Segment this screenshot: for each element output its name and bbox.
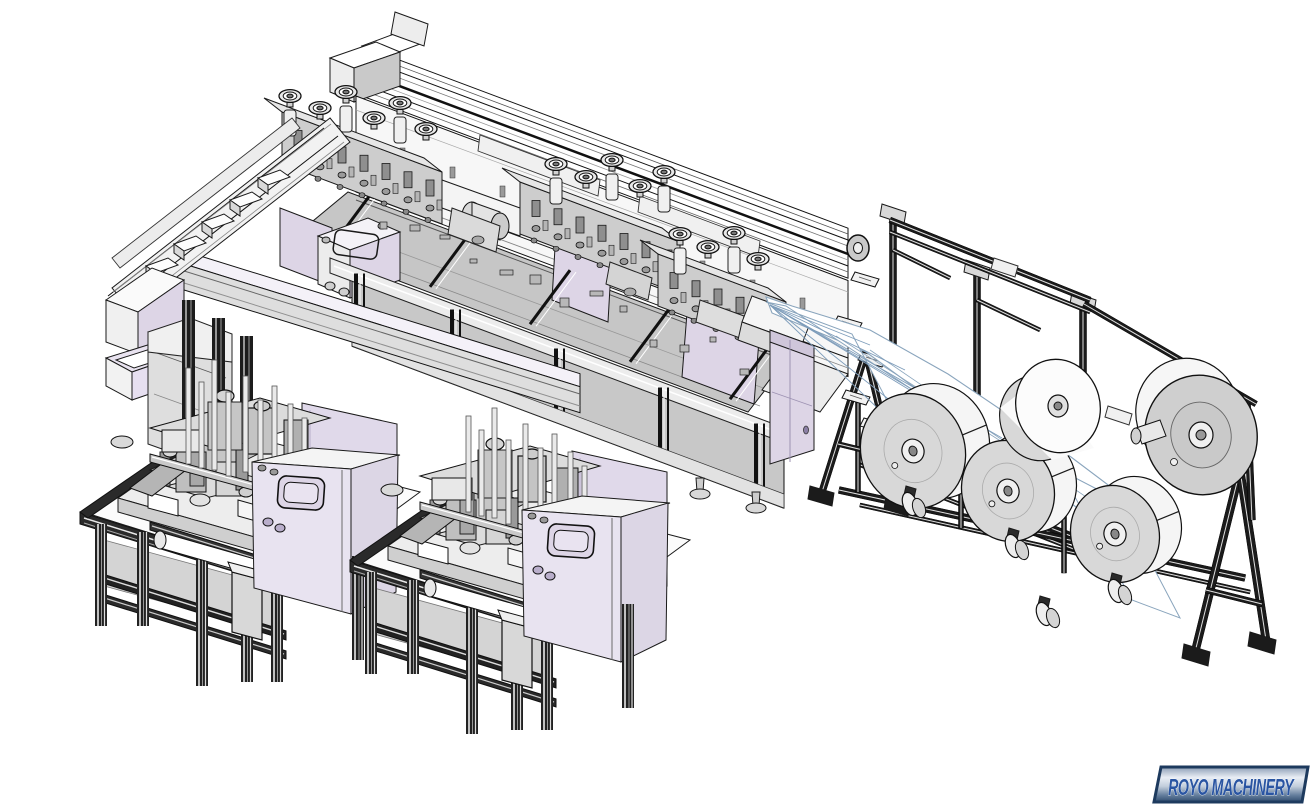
svg-text:ROYO MACHINERY: ROYO MACHINERY	[1168, 776, 1295, 801]
